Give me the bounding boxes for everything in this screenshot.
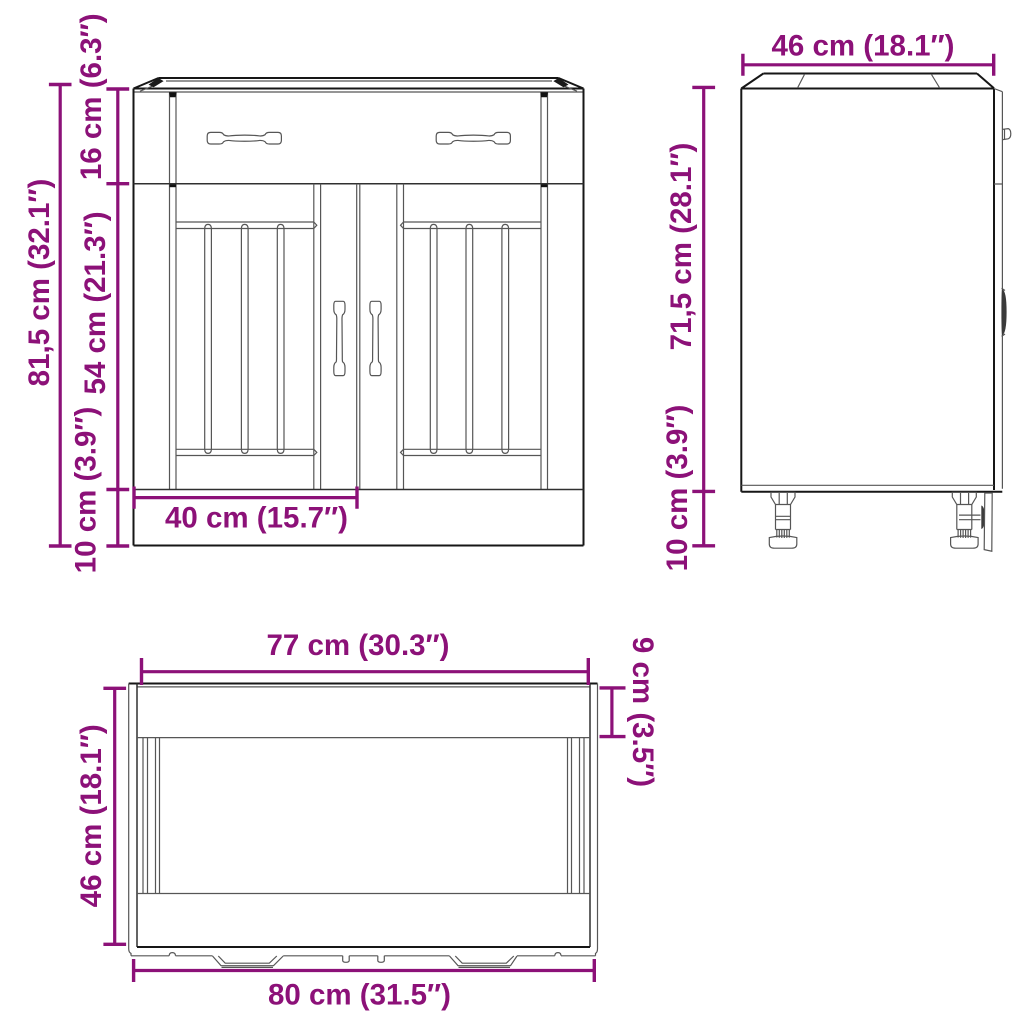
svg-text:46 cm (18.1″): 46 cm (18.1″) xyxy=(75,724,108,907)
svg-text:46 cm (18.1″): 46 cm (18.1″) xyxy=(771,30,954,63)
svg-text:71,5 cm (28.1″): 71,5 cm (28.1″) xyxy=(665,143,698,351)
svg-text:81,5 cm (32.1″): 81,5 cm (32.1″) xyxy=(23,179,56,387)
svg-text:40 cm (15.7″): 40 cm (15.7″) xyxy=(165,502,348,535)
svg-text:16 cm (6.3″): 16 cm (6.3″) xyxy=(75,13,108,180)
svg-text:10 cm (3.9″): 10 cm (3.9″) xyxy=(70,407,103,574)
svg-text:80 cm (31.5″): 80 cm (31.5″) xyxy=(268,979,451,1012)
svg-text:54 cm (21.3″): 54 cm (21.3″) xyxy=(79,211,112,394)
svg-text:77 cm (30.3″): 77 cm (30.3″) xyxy=(266,629,449,662)
svg-text:10 cm (3.9″): 10 cm (3.9″) xyxy=(661,405,694,572)
svg-text:9 cm (3.5″): 9 cm (3.5″) xyxy=(626,637,659,787)
